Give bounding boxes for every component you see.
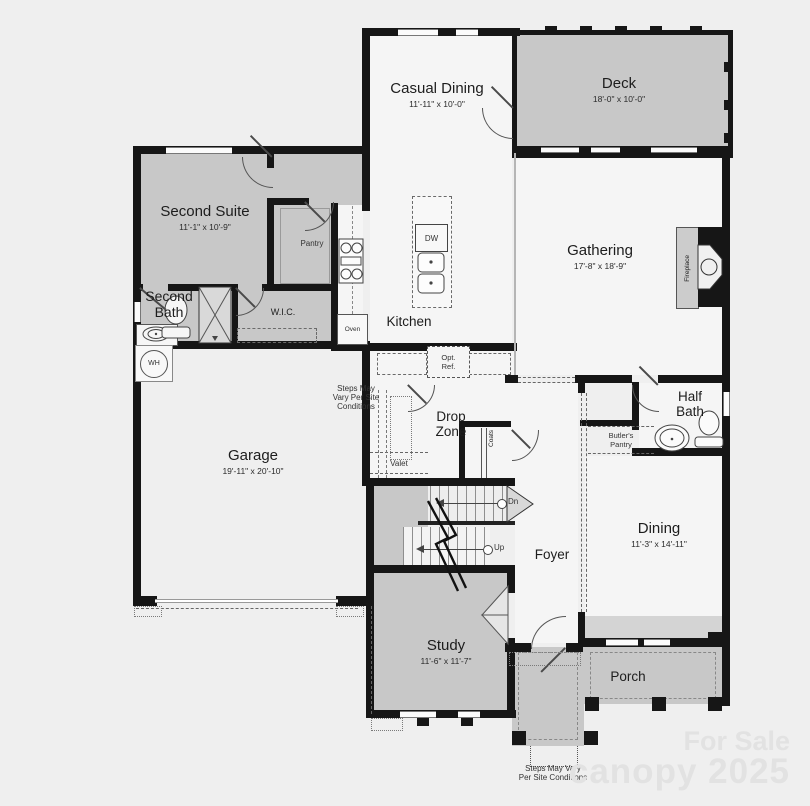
porch-column [652,697,666,711]
study-post [417,718,429,726]
window [606,639,638,646]
room-name: Bath [155,305,184,321]
wh-label: WH [148,360,160,367]
room-label-garage: Garage 19'-11" x 20'-10" [183,448,323,476]
opt-ref-label: Ref. [442,362,456,371]
butlers-pantry-label: Pantry [610,440,632,449]
room-label-casual-dining: Casual Dining 11'-11" x 10'-0" [367,81,507,109]
coats-label: Coats [488,430,495,447]
wall [362,478,515,486]
cased-opening [581,393,587,612]
deck-post [724,100,732,110]
wall [362,146,370,211]
wall [133,596,157,606]
deck-slider-window [541,147,579,153]
wall [362,28,520,36]
garage-apron [336,606,364,617]
room-dims: 11'-11" x 10'-0" [409,100,465,110]
deck-post [580,26,592,35]
room-dims: 17'-8" x 18'-9" [574,262,626,272]
dining-porch-strip [585,616,723,638]
room-label-deck: Deck 18'-0" x 10'-0" [549,76,689,104]
deck-slider-window [651,147,697,153]
room-label-pantry: Pantry [286,240,338,249]
wall [366,710,516,718]
room-dims: 11'-1" x 10'-9" [179,223,231,233]
study-post [461,718,473,726]
porch-column [584,731,598,745]
room-name: Second [145,289,192,305]
fireplace-label: Fireplace [684,255,691,282]
window [644,639,670,646]
fireplace-icon [698,237,724,297]
wall [336,596,370,606]
window [456,29,478,36]
window [398,29,438,36]
oven-label: Oven [345,326,361,333]
room-name: Second Suite [160,204,249,221]
oven-box: Oven [337,314,368,345]
up-arrow-origin [483,545,493,555]
room-label-study: Study 11'-6" x 11'-7" [376,638,516,666]
room-dims: 19'-11" x 20'-10" [222,467,283,477]
room-label-dining: Dining 11'-3" x 14'-11" [589,521,729,549]
french-doors[interactable] [480,586,510,646]
cased-opening [518,377,575,383]
sink-icon [416,252,448,296]
wall [262,284,338,291]
kitchen-gathering-divider [514,153,516,375]
dishwasher-label: DW [425,234,438,243]
room-label-porch: Porch [595,669,661,684]
window [166,147,232,154]
wall [362,341,370,485]
porch-column [585,697,599,711]
room-label-second-bath: Second Bath [136,289,202,320]
wall [578,375,585,393]
counter [377,353,427,375]
deck-post [724,62,732,72]
steps-dash [386,390,389,478]
butlers-pantry-label: Butler's [609,431,634,440]
floor-plan: DW Oven Opt. Ref. [0,0,810,806]
room-name: Casual Dining [390,81,483,98]
sideyard-dash [371,606,374,714]
shower-icon [198,286,232,344]
stairs-dn-label: Dn [508,498,518,507]
dn-arrow-origin [497,499,507,509]
room-name: Dining [638,521,681,538]
room-label-gathering: Gathering 17'-8" x 18'-9" [530,243,670,271]
room-name: Study [427,638,465,655]
porch-column [708,697,722,711]
garage-door [155,599,338,603]
room-dims: 18'-0" x 10'-0" [593,95,645,105]
steps-note-side: Steps May Vary Per Site Conditions [330,385,382,412]
deck-slider-window [591,147,620,153]
watermark-canopy: canopy 2025 [555,752,790,792]
half-bath-sink-icon [652,423,692,455]
window [400,711,436,718]
wall [658,375,722,383]
side-stoop [390,396,412,460]
deck-post [724,133,732,143]
cooktop-icon [338,238,364,284]
wic-shelf [237,328,317,343]
butlers-pantry-box: Butler's Pantry [588,426,654,454]
window [458,711,480,718]
deck-post [650,26,662,35]
counter [469,353,511,375]
room-name: Garage [228,448,278,465]
room-name: Bath [676,404,704,419]
room-label-half-bath: Half Bath [660,389,720,419]
stair-break-symbol [420,495,475,600]
opt-ref-box: Opt. Ref. [427,346,470,378]
porch-inner-dash [518,652,578,740]
note-line: Conditions [337,403,375,412]
dishwasher: DW [415,224,448,252]
room-name: Gathering [567,243,633,260]
deck-post [545,26,557,35]
room-name: Drop [436,409,465,424]
room-name: Half [678,389,702,404]
wall [505,375,518,383]
fireplace-hearth: Fireplace [676,227,699,309]
study-stoop [371,718,403,731]
porch-column [708,632,722,646]
driveway-dash [136,608,358,610]
room-label-wic: W.I.C. [255,307,311,317]
room-name: Zone [436,424,467,439]
room-label-drop-zone: Drop Zone [420,409,482,439]
stairs-up-label: Up [494,544,504,553]
deck-post [690,26,702,35]
room-name: Deck [602,76,636,93]
opt-ref-label: Opt. [441,353,455,362]
garage-apron [134,606,162,617]
room-label-foyer: Foyer [520,547,584,562]
room-dims: 11'-3" x 14'-11" [631,540,687,550]
porch-column [512,731,526,745]
room-dims: 11'-6" x 11'-7" [420,657,471,667]
room-label-second-suite: Second Suite 11'-1" x 10'-9" [135,204,275,232]
room-label-kitchen: Kitchen [368,314,450,329]
wall [566,643,583,652]
deck-post [615,26,627,35]
water-heater: WH [135,345,173,382]
